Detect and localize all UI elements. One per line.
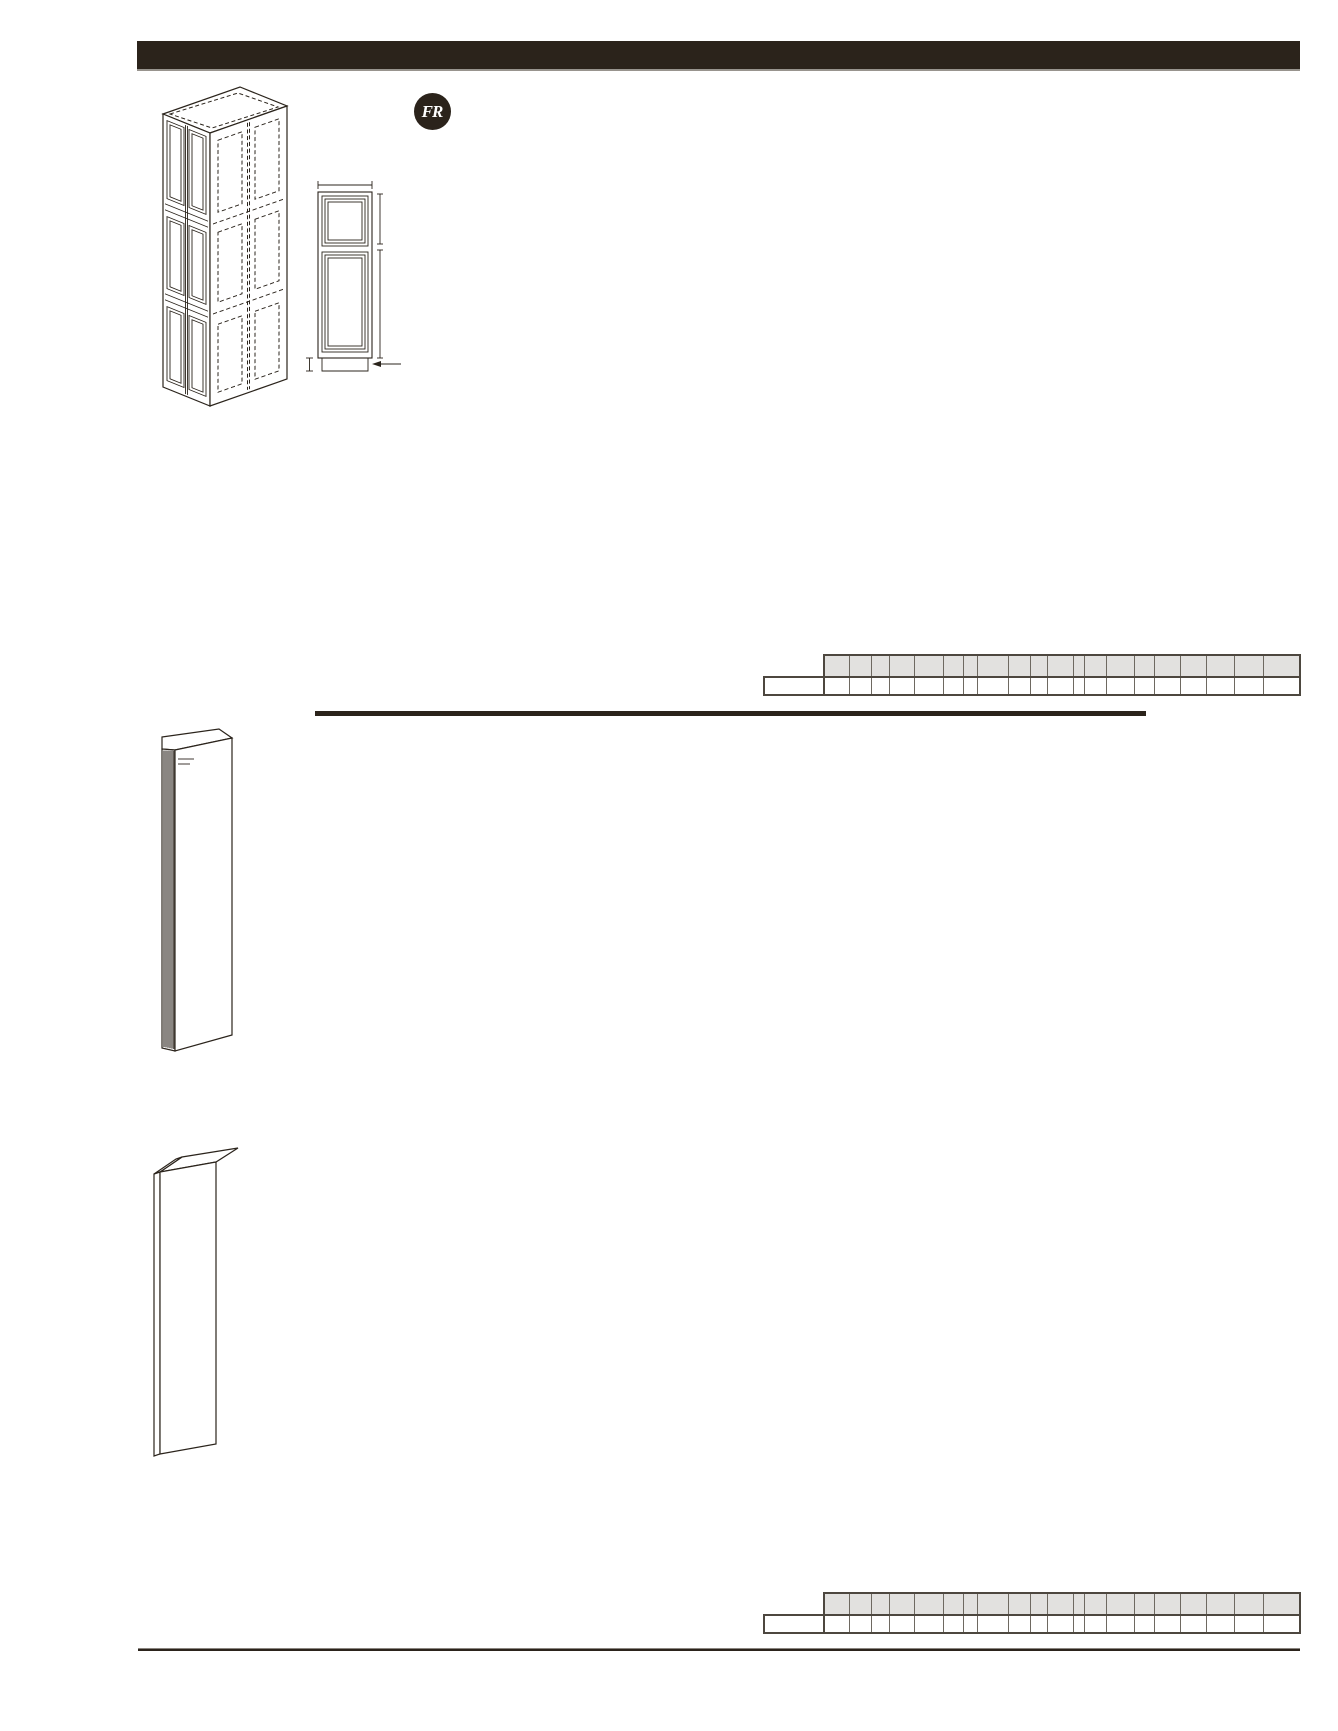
spec-grid-label-cell xyxy=(765,1616,825,1632)
spec-grid-value-cell xyxy=(1135,1616,1155,1632)
spec-grid-value-cell xyxy=(1207,1616,1235,1632)
fr-badge: FR xyxy=(414,93,451,130)
spec-grid-header-cell xyxy=(1009,656,1031,676)
spec-grid-header-cell xyxy=(978,656,1009,676)
spec-grid-value-cell xyxy=(1031,678,1048,694)
spec-grid-value-cell xyxy=(1085,1616,1107,1632)
spec-grid-header-cell xyxy=(1207,656,1235,676)
spec-grid-header-cell xyxy=(1155,656,1181,676)
spec-grid-value-cell xyxy=(825,1616,850,1632)
spec-grid-value-cell xyxy=(978,1616,1009,1632)
upper-door xyxy=(322,196,368,246)
panel-front-face xyxy=(175,738,232,1051)
spec-grid-value-cell xyxy=(850,678,872,694)
spec-grid-value-cell xyxy=(1181,1616,1207,1632)
spec-grid-value-cell xyxy=(915,1616,944,1632)
upper-spec-grid xyxy=(763,654,1301,696)
spec-grid-header-cell xyxy=(1085,656,1107,676)
spec-grid-header-cell xyxy=(1181,1594,1207,1614)
hatched-end-panel-figure xyxy=(157,726,237,1056)
spec-grid-header-cell xyxy=(1235,656,1264,676)
panel-edge-strip xyxy=(154,1172,160,1456)
spec-grid-header-cell xyxy=(1085,1594,1107,1614)
spec-grid-value-cell xyxy=(1155,678,1181,694)
spec-grid-header-cell xyxy=(890,1594,915,1614)
spec-grid-header-cell xyxy=(1264,1594,1299,1614)
spec-grid-value-cell xyxy=(1031,1616,1048,1632)
spec-grid-value-cell xyxy=(1207,678,1235,694)
spec-grid-value-cell xyxy=(1085,678,1107,694)
spec-grid-header-cell xyxy=(1074,656,1085,676)
spec-grid-header-cell xyxy=(825,1594,850,1614)
spec-grid-value-cell xyxy=(1107,678,1135,694)
spec-grid-header-cell xyxy=(825,656,850,676)
spec-grid-header-cell xyxy=(1155,1594,1181,1614)
spec-grid-header-cell xyxy=(1181,656,1207,676)
spec-grid-value-cell xyxy=(1074,678,1085,694)
catalog-page: FR xyxy=(0,0,1338,1731)
spec-grid-header-cell xyxy=(964,656,978,676)
spec-grid-value-cell xyxy=(890,678,915,694)
spec-grid-header-cell xyxy=(850,1594,872,1614)
cabinet-outline xyxy=(318,192,372,358)
spec-grid-label-cell xyxy=(765,678,825,694)
spec-grid-value-cell xyxy=(1181,678,1207,694)
tall-cabinet-isometric-figure xyxy=(150,84,295,409)
spec-grid-value-cell xyxy=(944,678,964,694)
toe-kick xyxy=(322,358,368,371)
spec-grid-value-cell xyxy=(1048,678,1074,694)
spec-grid-value-cell xyxy=(1135,678,1155,694)
spec-grid-header-cell xyxy=(978,1594,1009,1614)
fr-badge-label: FR xyxy=(422,102,443,122)
plain-end-panel-figure xyxy=(150,1146,245,1461)
spec-grid-value-cell xyxy=(944,1616,964,1632)
spec-grid-value-cell xyxy=(1048,1616,1074,1632)
spec-grid-value-cell xyxy=(850,1616,872,1632)
spec-grid-value-cell xyxy=(1107,1616,1135,1632)
spec-grid-value-cell xyxy=(825,678,850,694)
page-header-bar xyxy=(137,41,1300,71)
spec-grid-header-cell xyxy=(872,1594,890,1614)
spec-grid-header-cell xyxy=(1207,1594,1235,1614)
spec-grid-value-cell xyxy=(1264,1616,1299,1632)
spec-grid-value-cell xyxy=(1009,1616,1031,1632)
spec-grid-value-cell xyxy=(890,1616,915,1632)
tall-cabinet-elevation-figure xyxy=(298,178,410,390)
spec-grid-value-cell xyxy=(872,678,890,694)
spec-grid-header-cell xyxy=(1048,656,1074,676)
page-bottom-rule xyxy=(138,1648,1300,1651)
spec-grid-header-cell xyxy=(890,656,915,676)
spec-grid-value-cell xyxy=(1155,1616,1181,1632)
spec-grid-value-cell xyxy=(1264,678,1299,694)
spec-grid-value-cell xyxy=(964,1616,978,1632)
panel-front-face xyxy=(160,1162,216,1454)
spec-grid-value-cell xyxy=(1235,1616,1264,1632)
spec-grid-value-cell xyxy=(978,678,1009,694)
spec-grid-header-cell xyxy=(1031,656,1048,676)
spec-grid-header-cell xyxy=(1235,1594,1264,1614)
spec-grid-value-cell xyxy=(1074,1616,1085,1632)
section-divider-rule xyxy=(315,711,1146,716)
lower-spec-grid xyxy=(763,1592,1301,1634)
spec-grid-header-cell xyxy=(915,656,944,676)
spec-grid-header-cell xyxy=(1264,656,1299,676)
spec-grid-value-cell xyxy=(1009,678,1031,694)
spec-grid-header-cell xyxy=(1107,1594,1135,1614)
spec-grid-header-cell xyxy=(1135,656,1155,676)
spec-grid-header-cell xyxy=(1009,1594,1031,1614)
spec-grid-header-cell xyxy=(944,1594,964,1614)
spec-grid-header-cell xyxy=(964,1594,978,1614)
cabinet-side-face xyxy=(210,106,287,406)
spec-grid-header-cell xyxy=(1107,656,1135,676)
spec-grid-header-cell xyxy=(915,1594,944,1614)
spec-grid-header-cell xyxy=(944,656,964,676)
spec-grid-header-cell xyxy=(1135,1594,1155,1614)
spec-grid-value-cell xyxy=(872,1616,890,1632)
spec-grid-value-cell xyxy=(964,678,978,694)
spec-grid-value-cell xyxy=(1235,678,1264,694)
spec-grid-header-cell xyxy=(872,656,890,676)
spec-grid-value-cell xyxy=(915,678,944,694)
spec-grid-header-cell xyxy=(850,656,872,676)
spec-grid-header-cell xyxy=(1031,1594,1048,1614)
spec-grid-header-cell xyxy=(1074,1594,1085,1614)
spec-grid-header-cell xyxy=(1048,1594,1074,1614)
lower-door xyxy=(322,252,368,352)
